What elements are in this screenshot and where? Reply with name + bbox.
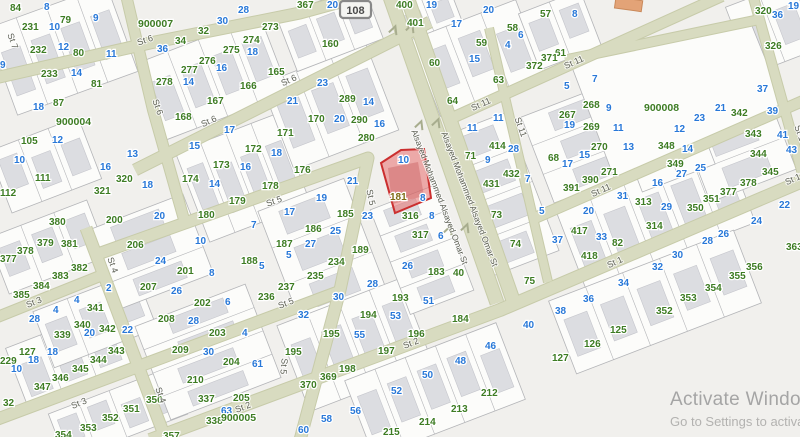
parcel-number-label: 342 [99,324,116,335]
parcel-number-label: 270 [591,142,608,153]
parcel-number-label: 232 [30,45,47,56]
parcel-number-label: 275 [223,45,240,56]
unit-number-label: 17 [562,159,574,170]
parcel-number-label: 274 [243,35,260,46]
parcel-number-label: 57 [540,9,552,20]
unit-number-label: 8 [572,9,578,20]
parcel-number-label: 321 [94,186,111,197]
parcel-number-label: 74 [510,239,522,250]
unit-number-label: 10 [49,22,61,33]
parcel-number-label: 213 [451,404,468,415]
unit-number-label: 53 [390,311,402,322]
parcel-number-label: 356 [746,262,763,273]
parcel-number-label: 367 [297,0,314,11]
parcel-number-label: 171 [277,128,294,139]
parcel-number-label: 377 [720,187,737,198]
unit-number-label: 6 [225,297,231,308]
parcel-number-label: 320 [755,6,772,17]
unit-number-label: 11 [467,123,478,134]
parcel-number-label: 212 [481,388,498,399]
parcel-number-label: 352 [656,306,673,317]
unit-number-label: 10 [14,155,26,166]
parcel-number-label: 400 [396,0,413,11]
parcel-number-label: 166 [240,81,257,92]
street-name-label: St 5 [278,358,289,375]
unit-number-label: 46 [485,341,497,352]
unit-number-label: 41 [777,130,789,141]
parcel-number-label: 32 [198,26,210,37]
unit-number-label: 4 [242,328,248,339]
parcel-number-label: 68 [548,153,560,164]
parcel-number-label: 236 [258,292,275,303]
parcel-number-label: 126 [584,339,601,350]
unit-number-label: 20 [327,0,339,11]
unit-number-label: 28 [508,144,520,155]
unit-number-label: 14 [71,68,83,79]
unit-number-label: 24 [751,216,763,227]
unit-number-label: 5 [564,81,570,92]
selected-parcel-label: 181 [390,192,407,203]
unit-number-label: 20 [84,328,96,339]
parcel-number-label: 105 [21,136,38,147]
unit-number-label: 8 [420,193,426,204]
unit-number-label: 20 [483,5,495,16]
parcel-number-label: 184 [452,314,469,325]
unit-number-label: 30 [203,347,215,358]
parcel-number-label: 237 [278,282,295,293]
parcel-number-label: 280 [358,133,375,144]
parcel-number-label: 344 [90,355,107,366]
parcel-number-label: 432 [503,169,520,180]
unit-number-label: 17 [224,125,236,136]
parcel-number-label: 343 [745,129,762,140]
unit-number-label: 32 [298,310,310,321]
unit-number-label: 21 [287,96,299,107]
unit-number-label: 56 [350,406,362,417]
parcel-number-label: 64 [447,96,459,107]
parcel-number-label: 160 [322,39,339,50]
unit-number-label: 20 [154,211,166,222]
parcel-number-label: 214 [419,417,436,428]
unit-number-label: 26 [718,229,730,240]
unit-number-label: 13 [127,149,139,160]
parcel-number-label: 189 [352,245,369,256]
unit-number-label: 19 [788,1,800,12]
unit-number-label: 4 [505,40,511,51]
parcel-number-label: 348 [658,141,675,152]
parcel-number-label: 316 [402,211,419,222]
parcel-number-label: 354 [705,283,722,294]
unit-number-label: 26 [171,286,183,297]
parcel-number-label: 186 [305,224,322,235]
parcel-number-label: 87 [53,98,65,109]
parcel-number-label: 290 [351,115,368,126]
unit-number-label: 31 [617,191,629,202]
unit-number-label: 14 [363,97,375,108]
parcel-number-label: 289 [339,94,356,105]
unit-number-label: 16 [216,63,228,74]
parcel-number-label: 320 [116,174,133,185]
block-id-label: 900005 [221,412,256,424]
parcel-number-label: 354 [55,430,72,437]
parcel-number-label: 380 [49,217,66,228]
parcel-number-label: 313 [635,197,652,208]
unit-number-label: 15 [579,150,591,161]
unit-number-label: 20 [583,206,595,217]
unit-number-label: 33 [596,232,608,243]
unit-number-label: 9 [93,13,99,24]
unit-number-label: 18 [47,347,59,358]
unit-number-label: 30 [217,16,229,27]
parcel-number-label: 71 [465,151,477,162]
parcel-number-label: 417 [571,226,588,237]
unit-number-label: 32 [652,262,664,273]
parcel-number-label: 176 [294,165,311,176]
unit-number-label: 30 [333,292,345,303]
block-id-label: 900008 [644,102,679,114]
unit-number-label: 16 [652,178,664,189]
parcel-number-label: 278 [156,77,173,88]
unit-number-label: 4 [53,305,59,316]
unit-number-label: 27 [676,169,688,180]
parcel-number-label: 183 [428,267,445,278]
map-canvas[interactable]: 8487992311023212801123314811887910512101… [0,0,800,437]
parcel-number-label: 353 [680,293,697,304]
parcel-number-label: 111 [35,173,51,184]
parcel-number-label: 202 [194,298,211,309]
unit-number-label: 40 [523,320,535,331]
parcel-number-label: 342 [731,108,748,119]
unit-number-label: 13 [623,142,635,153]
parcel-number-label: 40 [453,268,465,279]
parcel-number-label: 170 [308,114,325,125]
parcel-number-label: 165 [268,67,285,78]
unit-number-label: 9 [485,155,491,166]
unit-number-label: 28 [188,316,200,327]
unit-number-label: 12 [58,42,70,53]
parcel-number-label: 378 [17,246,34,257]
parcel-number-label: 391 [563,183,580,194]
parcel-number-label: 207 [140,282,157,293]
unit-number-label: 28 [29,314,41,325]
parcel-number-label: 172 [245,144,262,155]
parcel-number-label: 59 [476,38,488,49]
parcel-number-label: 277 [181,65,198,76]
unit-number-label: 9 [606,103,612,114]
parcel-number-label: 379 [37,238,54,249]
parcel-number-label: 350 [687,203,704,214]
parcel-number-label: 370 [300,380,317,391]
parcel-number-label: 187 [276,239,293,250]
parcel-number-label: 60 [429,58,441,69]
parcel-number-label: 357 [163,431,180,437]
parcel-number-label: 344 [750,149,767,160]
unit-number-label: 24 [155,256,167,267]
parcel-number-label: 346 [52,373,69,384]
unit-number-label: 28 [702,236,714,247]
unit-number-label: 12 [52,135,64,146]
unit-number-label: 19 [564,120,576,131]
parcel-number-label: 178 [262,181,279,192]
parcel-number-label: 112 [0,188,17,199]
parcel-number-label: 383 [52,271,69,282]
parcel-number-label: 210 [187,375,204,386]
unit-number-label: 18 [33,102,45,113]
parcel-number-label: 353 [80,423,97,434]
parcel-number-label: 58 [507,23,519,34]
parcel-number-label: 201 [177,266,194,277]
parcel-number-label: 326 [765,41,782,52]
unit-number-label: 23 [317,78,329,89]
unit-number-label: 10 [398,155,410,166]
parcel-number-label: 273 [262,22,279,33]
unit-number-label: 21 [347,176,359,187]
parcel-number-label: 195 [285,347,302,358]
unit-number-label: 52 [391,386,403,397]
unit-number-label: 4 [74,295,80,306]
parcel-number-label: 235 [307,271,324,282]
unit-number-label: 12 [674,124,686,135]
parcel-number-label: 82 [612,238,624,249]
unit-number-label: 5 [539,206,545,217]
parcel-number-label: 314 [646,221,663,232]
parcel-number-label: 343 [108,346,125,357]
parcel-number-label: 276 [199,56,216,67]
parcel-number-label: 347 [34,382,51,393]
unit-number-label: 61 [252,359,264,370]
unit-number-label: 8 [429,211,435,222]
unit-number-label: 14 [682,144,694,155]
block-id-label: 900007 [138,18,173,30]
parcel-number-label: 197 [378,346,395,357]
parcel-number-label: 125 [610,325,627,336]
unit-number-label: 19 [316,193,328,204]
parcel-number-label: 414 [489,141,506,152]
unit-number-label: 60 [298,425,310,436]
parcel-number-label: 339 [54,330,71,341]
parcel-number-label: 168 [175,112,192,123]
unit-number-label: 34 [618,278,630,289]
parcel-number-label: 63 [493,75,505,86]
parcel-number-label: 351 [703,194,720,205]
parcel-number-label: 209 [172,345,189,356]
unit-number-label: 16 [100,162,112,173]
parcel-number-label: 355 [729,271,746,282]
unit-number-label: 39 [767,106,779,117]
unit-number-label: 10 [195,236,207,247]
parcel-number-label: 345 [72,364,89,375]
unit-number-label: 16 [240,162,252,173]
parcel-number-label: 341 [87,303,104,314]
unit-number-label: 18 [271,148,283,159]
unit-number-label: 30 [672,250,684,261]
unit-number-label: 20 [334,114,346,125]
unit-number-label: 25 [695,163,707,174]
parcel-number-label: 351 [123,404,140,415]
unit-number-label: 11 [613,123,624,134]
unit-number-label: 6 [438,231,444,242]
unit-number-label: 51 [423,296,435,307]
unit-number-label: 25 [330,226,342,237]
unit-number-label: 38 [555,306,567,317]
unit-number-label: 29 [661,202,673,213]
unit-number-label: 36 [772,10,784,21]
parcel-number-label: 431 [483,179,500,190]
unit-number-label: 5 [259,261,265,272]
unit-number-label: 11 [106,49,117,60]
parcel-number-label: 390 [582,175,599,186]
unit-number-label: 10 [11,364,23,375]
parcel-number-label: 382 [71,263,88,274]
parcel-number-label: 203 [209,328,226,339]
unit-number-label: 5 [286,250,292,261]
parcel-number-label: 73 [491,210,503,221]
parcel-number-label: 401 [407,18,424,29]
unit-number-label: 17 [284,207,296,218]
unit-number-label: 37 [757,84,769,95]
unit-number-label: 17 [451,19,463,30]
parcel-number-label: 206 [127,240,144,251]
parcel-number-label: 32 [3,398,15,409]
parcel-number-label: 194 [360,310,377,321]
unit-number-label: 43 [786,145,798,156]
parcel-number-label: 352 [102,413,119,424]
route-108-shield-label: 108 [346,5,364,17]
parcel-number-label: 363 [786,242,800,253]
unit-number-label: 26 [402,261,414,272]
parcel-number-label: 198 [339,364,356,375]
unit-number-label: 58 [321,414,333,425]
unit-number-label: 23 [694,113,706,124]
parcel-number-label: 317 [412,230,429,241]
unit-number-label: 37 [552,235,564,246]
parcel-number-label: 185 [337,209,354,220]
unit-number-label: 7 [525,174,531,185]
parcel-number-label: 268 [583,100,600,111]
unit-number-label: 18 [142,180,154,191]
parcel-number-label: 231 [22,22,39,33]
parcel-number-label: 384 [33,281,50,292]
parcel-number-label: 271 [601,167,618,178]
parcel-number-label: 188 [241,256,258,267]
unit-number-label: 22 [122,325,134,336]
unit-number-label: 23 [362,211,374,222]
unit-number-label: 21 [715,103,727,114]
parcel-number-label: 377 [0,254,17,265]
unit-number-label: 9 [0,60,6,71]
parcel-number-label: 345 [762,167,779,178]
unit-number-label: 15 [189,141,201,152]
unit-number-label: 28 [367,279,379,290]
parcel-number-label: 84 [10,3,22,14]
parcel-number-label: 174 [182,174,199,185]
unit-number-label: 8 [44,2,50,13]
parcel-number-label: 378 [740,178,757,189]
parcel-number-label: 173 [213,160,230,171]
parcel-number-label: 80 [73,48,85,59]
parcel-number-label: 418 [581,251,598,262]
unit-number-label: 7 [592,74,598,85]
parcel-number-label: 180 [198,210,215,221]
unit-number-label: 48 [455,356,467,367]
unit-number-label: 36 [583,294,595,305]
unit-number-label: 6 [518,30,524,41]
parcel-number-label: 369 [320,372,337,383]
unit-number-label: 22 [779,200,791,211]
unit-number-label: 15 [469,54,481,65]
unit-number-label: 18 [28,355,40,366]
parcel-number-label: 208 [158,314,175,325]
parcel-number-label: 179 [229,196,246,207]
unit-number-label: 14 [209,179,221,190]
unit-number-label: 55 [354,330,366,341]
unit-number-label: 19 [426,0,438,11]
parcel-number-label: 233 [41,69,58,80]
parcel-number-label: 127 [552,353,569,364]
parcel-number-label: 371 [541,53,558,64]
map-viewport[interactable]: 8487992311023212801123314811887910512101… [0,0,800,437]
parcel-number-label: 200 [106,215,123,226]
unit-number-label: 36 [157,44,169,55]
parcel-number-label: 204 [223,357,240,368]
unit-number-label: 27 [305,239,317,250]
parcel-number-label: 79 [60,15,72,26]
unit-number-label: 16 [374,119,386,130]
unit-number-label: 14 [183,77,195,88]
parcel-number-label: 195 [323,329,340,340]
parcel-number-label: 34 [175,36,187,47]
parcel-number-label: 215 [383,427,400,437]
unit-number-label: 18 [247,47,259,58]
unit-number-label: 11 [493,113,504,124]
parcel-number-label: 381 [61,239,78,250]
parcel-number-label: 193 [392,293,409,304]
parcel-number-label: 337 [198,394,215,405]
parcel-number-label: 167 [207,96,224,107]
unit-number-label: 8 [209,268,215,279]
parcel-number-label: 75 [524,276,536,287]
block-id-label: 900004 [56,116,91,128]
parcel-number-label: 81 [91,79,103,90]
unit-number-label: 7 [251,220,257,231]
unit-number-label: 28 [238,5,250,16]
unit-number-label: 2 [106,283,112,294]
unit-number-label: 50 [422,370,434,381]
parcel-number-label: 269 [583,122,600,133]
parcel-number-label: 234 [328,257,345,268]
